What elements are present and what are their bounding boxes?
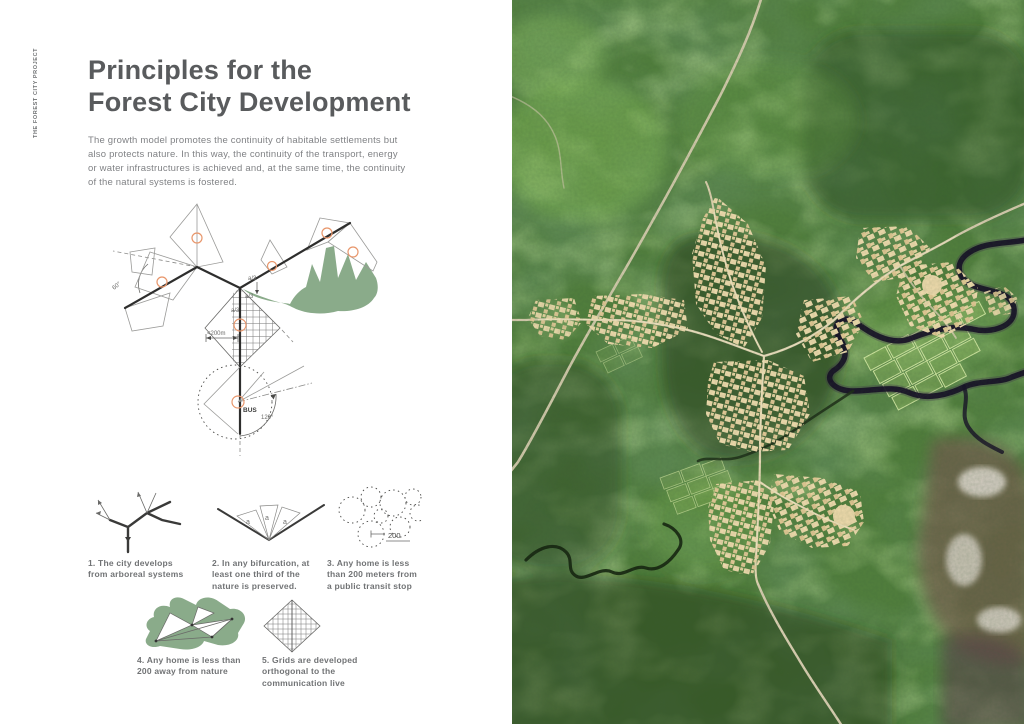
growth-model-diagram: 60° a/3 a/3 a/3 <200m BUS 120° bbox=[80, 190, 420, 468]
bifurcation-a-label-1: a bbox=[246, 519, 250, 526]
angle-60-label: 60° bbox=[112, 281, 123, 292]
bus-label: BUS bbox=[243, 407, 257, 414]
a3-label-3: a/3 bbox=[231, 308, 240, 314]
principle-2-diagram: a a a bbox=[212, 495, 332, 550]
radius-200-label: 200 bbox=[388, 531, 401, 540]
principle-2-caption: 2. In any bifurcation, at least one thir… bbox=[212, 558, 310, 592]
satellite-image bbox=[512, 0, 1024, 724]
a3-label-1: a/3 bbox=[248, 276, 257, 282]
poster-page: THE FOREST CITY PROJECT Principles for t… bbox=[0, 0, 1024, 724]
max-distance-label: <200m bbox=[207, 331, 226, 337]
principle-1-caption: 1. The city develops from arboreal syste… bbox=[88, 558, 183, 581]
principle-4-caption: 4. Any home is less than 200 away from n… bbox=[137, 655, 241, 678]
principle-5-diagram bbox=[262, 598, 322, 653]
bifurcation-a-label-3: a bbox=[283, 519, 287, 526]
left-text-page: THE FOREST CITY PROJECT Principles for t… bbox=[0, 0, 512, 724]
intro-paragraph: The growth model promotes the continuity… bbox=[88, 134, 468, 190]
nature-area bbox=[243, 246, 378, 313]
principle-4-diagram bbox=[140, 593, 255, 651]
a3-label-2: a/3 bbox=[245, 294, 254, 300]
urban-grid bbox=[200, 285, 285, 370]
principle-5-caption: 5. Grids are developed orthogonal to the… bbox=[262, 655, 358, 689]
project-vertical-label: THE FOREST CITY PROJECT bbox=[33, 48, 39, 138]
principle-3-diagram: 200 bbox=[332, 483, 422, 551]
bifurcation-a-label-2: a bbox=[265, 515, 269, 522]
principle-3-caption: 3. Any home is less than 200 meters from… bbox=[327, 558, 417, 592]
angle-120-label: 120° bbox=[261, 415, 274, 421]
page-title: Principles for the Forest City Developme… bbox=[88, 54, 411, 119]
principle-1-diagram bbox=[90, 480, 205, 555]
